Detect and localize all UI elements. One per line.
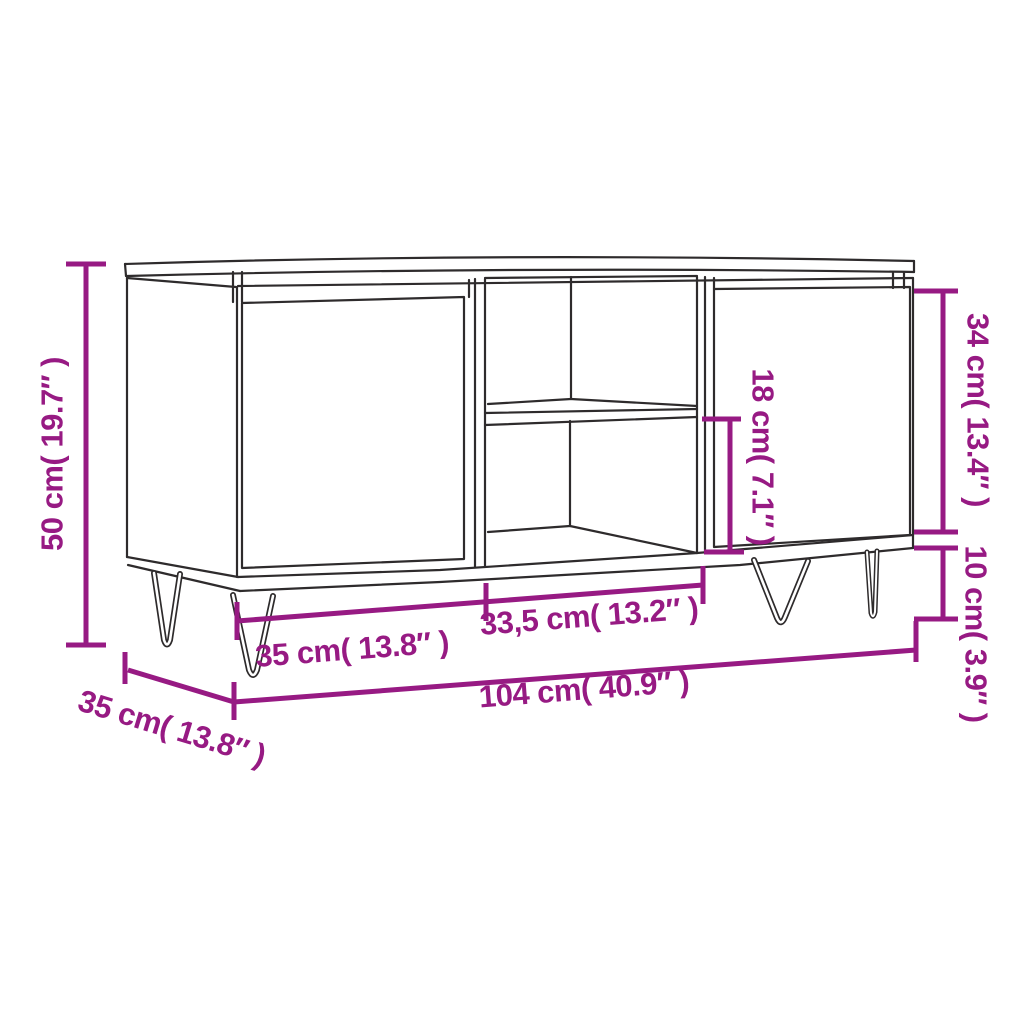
leg-back-left	[154, 573, 180, 645]
left-door-width-dimension-label: 35 cm( 13.8″ )	[254, 624, 450, 674]
opening-top-edge	[485, 276, 697, 278]
opening-height-dimension-label: 18 cm( 7.1″ )	[746, 368, 781, 545]
diagram-canvas: 50 cm( 19.7″ ) 34 cm( 13.4″ ) 10 cm( 3.9…	[0, 0, 1024, 1024]
floor-back-edge	[570, 526, 697, 553]
shelf-front-edge	[485, 409, 697, 413]
bottom-slab-lower-edge	[240, 548, 913, 591]
dimension-diagram: 50 cm( 19.7″ ) 34 cm( 13.4″ ) 10 cm( 3.9…	[0, 0, 1024, 1024]
carcass-top-edge	[238, 278, 913, 286]
door-height-dimension-label: 34 cm( 13.4″ )	[961, 313, 996, 507]
top-slab-top-edge	[125, 257, 914, 264]
dimension-labels: 50 cm( 19.7″ ) 34 cm( 13.4″ ) 10 cm( 3.9…	[35, 313, 996, 773]
floor-wall-joint	[488, 526, 570, 532]
depth-dimension-line	[128, 670, 234, 702]
leg-height-dimension-label: 10 cm( 3.9″ )	[959, 545, 994, 722]
shelf-bottom-edge	[485, 417, 697, 425]
top-slab-bottom-edge	[126, 270, 914, 276]
height-dimension-label: 50 cm( 19.7″ )	[35, 357, 70, 551]
dimension-lines	[66, 264, 958, 720]
total-width-dimension-label: 104 cm( 40.9″ )	[478, 663, 691, 714]
leg-back-right-inner	[754, 560, 808, 622]
bottom-slab-side-edge	[128, 565, 240, 591]
depth-dimension-label: 35 cm( 13.8″ )	[74, 683, 270, 773]
leg-back-right	[754, 560, 808, 622]
left-door	[242, 297, 464, 568]
right-door	[714, 287, 910, 547]
top-slab-left-cap	[125, 264, 126, 276]
side-top-edge	[127, 278, 236, 287]
shelf-wall-joint	[488, 399, 571, 404]
shelf-back-edge	[571, 399, 697, 406]
